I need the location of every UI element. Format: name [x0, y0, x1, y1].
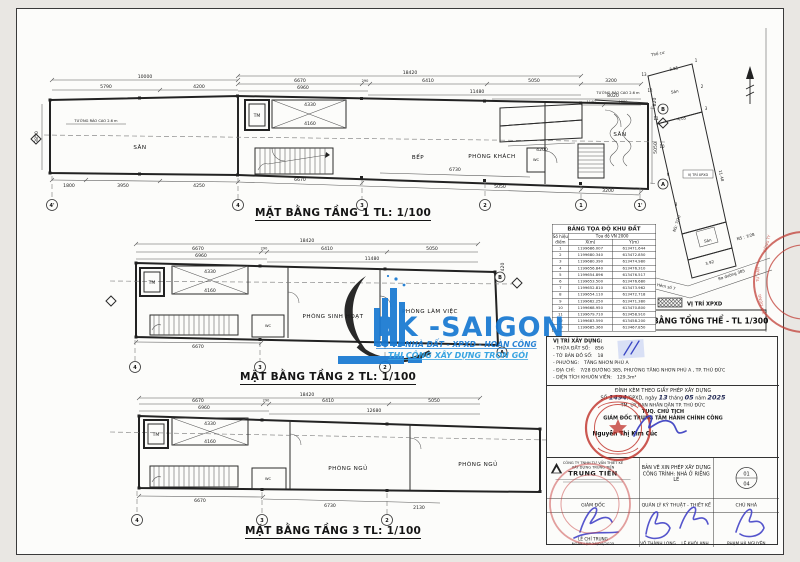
grid-label: 1 [579, 203, 583, 209]
floor1-stairs [255, 144, 604, 178]
dim-label: 6670 [194, 498, 206, 504]
coord-col-point: Số hiệu điểm [552, 233, 568, 245]
doc-line2: CÔNG TRÌNH: NHÀ Ở RIÊNG LẺ [640, 472, 714, 483]
floor1-dimensions: 18420 10000 6670 290 6410 5050 3200 5790… [34, 70, 659, 195]
floor2-tm-label: TM [148, 280, 156, 286]
grid-label: 4 [133, 365, 137, 371]
coord-cell: 613472.850 [612, 252, 656, 259]
floor2-elevator: TM [140, 268, 164, 296]
site-label-vi-tri: VỊ TRÍ XPXD [688, 172, 709, 177]
floor2-stairs [150, 315, 238, 335]
dim-label: 290 [362, 79, 369, 83]
coord-cell: 613467.850 [612, 324, 656, 331]
coord-cell: 1199685.360 [568, 324, 612, 331]
location-label: - ĐỊA CHỈ: [553, 367, 575, 373]
north-arrow-icon [746, 66, 754, 104]
coord-cell: 1199656.840 [568, 265, 612, 272]
point-number: 3 [705, 106, 708, 111]
floor1-plan: TM 4330 4160 4200 18420 [30, 56, 675, 216]
dim-label: 6960 [198, 405, 210, 411]
location-label: - DIỆN TÍCH KHUÔN VIÊN: [553, 375, 612, 381]
coord-cell: 613472.718 [612, 291, 656, 298]
room-label-phong-khach: PHÒNG KHÁCH [468, 153, 516, 160]
point-number: 2 [701, 84, 704, 89]
coord-cell: 1199654.110 [568, 291, 612, 298]
coord-cell: 613458.200 [612, 318, 656, 325]
permit-day: 13 [659, 394, 668, 402]
edge-length: 3.92 [705, 259, 715, 266]
dim-label: 18420 [300, 392, 315, 398]
floor1-title: MẶT BẰNG TẦNG 1 TL: 1/100 [255, 207, 431, 221]
permit-year: 2025 [707, 394, 725, 402]
point-number: 12 [647, 88, 653, 93]
dim-label: 6670 [192, 344, 204, 350]
signature-tech2 [680, 507, 708, 528]
edge-length: 11.48 [718, 170, 726, 183]
coord-table-row: 121199683.590613458.200 [552, 318, 656, 325]
bk-saigon-watermark: BK -SAIGON ĐO VẼ NHÀ ĐẤT - XPXD - HOÀN C… [330, 266, 565, 368]
dim-label: 4200 [193, 84, 205, 90]
point-number: 8 [675, 202, 678, 207]
point-number: 1 [695, 58, 698, 63]
edge-length: 3.85 [669, 65, 679, 72]
dim-label: 4330 [204, 269, 216, 275]
dim-label: 6670 [294, 78, 306, 84]
dim-label: 4160 [204, 439, 216, 445]
floor3-plan: TM 4330 4160 18420 6670 290 6410 5050 69… [100, 392, 560, 542]
floor1-walls [44, 95, 666, 190]
dim-label: 5050 [528, 78, 540, 84]
floor2-void: 4330 4160 [172, 266, 248, 294]
doc-line1: BẢN VẼ XIN PHÉP XÂY DỰNG [640, 465, 714, 471]
grid-label: 3 [260, 518, 264, 524]
dim-label: 11480 [470, 89, 485, 95]
dim-label: 5790 [100, 84, 112, 90]
point-number: 9 [667, 172, 670, 177]
grid-label: 2 [483, 203, 487, 209]
site-label-ns1: NS: 7/20 [672, 214, 682, 232]
floor3-dimensions: 18420 6670 290 6410 5050 6960 12680 6670… [137, 392, 482, 511]
coord-table-row: 21199680.340613472.850 [552, 252, 656, 259]
edge-length: 4.05 [677, 115, 687, 122]
edge-stamp-text: XÂY DỰNG [757, 294, 766, 315]
floor3-title: MẶT BẰNG TẦNG 3 TL: 1/100 [245, 525, 421, 539]
dim-label: 6410 [322, 398, 334, 404]
floor2-title: MẶT BẰNG TẦNG 2 TL: 1/100 [240, 371, 416, 385]
coord-table-row: 61199653.500613476.680 [552, 278, 656, 285]
legend-label: VỊ TRÍ XPXD [687, 300, 723, 308]
location-value: 18 [597, 353, 603, 359]
drawing-sheet: TM 4330 4160 4200 18420 [0, 0, 800, 562]
coord-table-row: 131199685.360613467.850 [552, 324, 656, 331]
dim-label: 4250 [193, 183, 205, 189]
dim-label: 2130 [413, 505, 425, 511]
dim-label: 4160 [204, 288, 216, 294]
watermark-name: BK -SAIGON [375, 312, 565, 343]
permit-signature [628, 406, 692, 446]
dim-label: 1140 [587, 100, 596, 104]
dim-label: 5050 [428, 398, 440, 404]
watermark-line1: ĐO VẼ NHÀ ĐẤT - XPXD - HOÀN CÔNG [375, 339, 537, 349]
dim-label: 290 [261, 247, 268, 251]
dim-label: 12680 [367, 408, 382, 414]
coord-table-body: 11199686.007613471.64421199680.340613472… [552, 245, 656, 331]
dim-label: 1880 [619, 100, 628, 104]
dim-label: 5050 [426, 246, 438, 252]
permit-month: 05 [685, 394, 694, 402]
floor3-elevator: TM [144, 420, 168, 448]
dim-label: 11480 [365, 256, 380, 262]
coord-cell: 2 [552, 252, 568, 259]
floor1-room-labels: SÂN BẾP PHÒNG KHÁCH SÂN WC TƯỜNG RÀO CAO… [66, 90, 640, 162]
dim-label: 6670 [192, 398, 204, 404]
dim-label: 4330 [204, 421, 216, 427]
point-number: 10 [659, 144, 665, 149]
permit-mid3: năm [695, 396, 706, 402]
coord-cell: 613476.680 [612, 278, 656, 285]
grid-label: 4 [236, 203, 240, 209]
dim-label: 4200 [536, 147, 548, 153]
site-legend: VỊ TRÍ XPXD [658, 298, 723, 308]
room-label-bep: BẾP [412, 153, 424, 161]
stamp-star-icon [609, 419, 627, 436]
watermark-line2: THI CÔNG XÂY DỰNG TRỌN GÓI [388, 349, 528, 360]
room-label-san-right: SÂN [613, 131, 626, 138]
coord-cell: 1199680.340 [568, 252, 612, 259]
dim-label: 6730 [449, 167, 461, 173]
location-value: 129.3m² [617, 375, 636, 381]
signature-owner [736, 509, 764, 536]
site-label-tho-cu: Thổ cư [650, 50, 666, 58]
site-label-san: Sân [671, 88, 680, 94]
site-label-san-mid: Sân [703, 237, 712, 244]
permit-mid2: tháng [669, 396, 683, 402]
room-label-ngu2: PHÒNG NGỦ [458, 460, 497, 468]
location-section: VỊ TRÍ XÂY DỰNG: - THỬA ĐẤT SỐ:856 - TỜ … [547, 337, 779, 385]
room-label-wc: WC [265, 477, 272, 481]
floor1-elevator: TM [245, 100, 269, 130]
dim-label: 6960 [195, 253, 207, 259]
floor1-grid-bubbles: 4' 4 3 2 1 1' B A [31, 104, 668, 211]
dim-label: 6960 [297, 85, 309, 91]
room-label-wc: WC [533, 158, 540, 162]
location-value: 7/28 ĐƯỜNG 385, PHƯỜNG TĂNG NHƠN PHÚ A ,… [580, 367, 725, 373]
dim-label: 6410 [422, 78, 434, 84]
floor3-stairs [150, 466, 238, 487]
company-stamp-icon [544, 460, 640, 546]
location-value: 856 [595, 346, 604, 352]
location-value: TĂNG NHƠN PHÚ A [584, 360, 629, 366]
coord-cell: 613470.800 [612, 305, 656, 312]
sheet-number-cell: 01 04 [713, 458, 779, 498]
dim-label: 6670 [294, 177, 306, 183]
floor3-room-labels: PHÒNG NGỦ PHÒNG NGỦ WC [265, 460, 498, 481]
room-label-san: SÂN [133, 144, 146, 151]
dim-label: 290 [263, 399, 270, 403]
coord-table-title: BẢNG TỌA ĐỘ KHU ĐẤT [552, 224, 656, 233]
pen-mark [616, 338, 648, 360]
dim-label: 5050 [494, 184, 506, 190]
sheet-number-circle: 01 04 [734, 465, 760, 491]
sheet-total: 04 [743, 482, 749, 488]
edge-stamp-text: CÔNG TY [762, 234, 771, 253]
dim-label: 10000 [138, 74, 153, 80]
dim-label: 4160 [304, 121, 316, 127]
coord-table-row: 81199654.110613472.718 [552, 291, 656, 298]
dim-label: 4330 [304, 102, 316, 108]
coord-cell: 1199653.500 [568, 278, 612, 285]
room-label-ngu1: PHÒNG NGỦ [328, 464, 367, 472]
coord-cell: 1199668.950 [568, 305, 612, 312]
dim-label: 6410 [321, 246, 333, 252]
coord-cell: 1199683.590 [568, 318, 612, 325]
coord-table-row: 41199656.840613476.310 [552, 265, 656, 272]
dim-label: 3200 [605, 78, 617, 84]
floor1-roof-hatch: 4200 [500, 104, 582, 153]
coord-cell: 613476.310 [612, 265, 656, 272]
room-label-wc: WC [265, 324, 272, 328]
edge-stamp-icon: CÔNG TY TƯ VẤN XÂY DỰNG [750, 216, 800, 348]
dim-label: 18420 [403, 70, 418, 76]
dim-label: 6730 [324, 503, 336, 509]
floor1-tm-label: TM [253, 113, 261, 119]
grid-label: 4' [49, 203, 54, 209]
floor3-walls [110, 415, 548, 494]
site-point-numbers: 1 2 3 13 12 11 10 9 8 [641, 58, 707, 207]
point-number: 13 [641, 72, 647, 77]
dim-label: 3200 [602, 188, 614, 194]
point-number: 11 [653, 116, 659, 121]
site-label-hem: Hẻm số 7 [657, 282, 677, 291]
coordinate-table: BẢNG TỌA ĐỘ KHU ĐẤT Số hiệu điểm Tọa độ … [552, 224, 656, 340]
coord-table-row: 101199668.950613470.800 [552, 305, 656, 312]
fence-label-left: TƯỜNG RÀO CAO 2.6 m [73, 118, 118, 123]
signature-tech1 [646, 512, 670, 538]
doc-title-cell: BẢN VẼ XIN PHÉP XÂY DỰNG CÔNG TRÌNH: NHÀ… [639, 458, 713, 498]
grid-label: 4 [135, 518, 139, 524]
edge-stamp-text: TƯ VẤN [755, 267, 761, 283]
dim-label: 18420 [300, 238, 315, 244]
grid-label: 2 [385, 518, 389, 524]
dim-label: 6670 [192, 246, 204, 252]
floor1-void: 4330 4160 [272, 100, 346, 128]
dim-label: 1800 [63, 183, 75, 189]
dim-label: 3950 [117, 183, 129, 189]
floor3-tm-label: TM [152, 432, 160, 438]
sheet-no: 01 [743, 472, 749, 478]
floor3-void: 4330 4160 [172, 418, 248, 445]
